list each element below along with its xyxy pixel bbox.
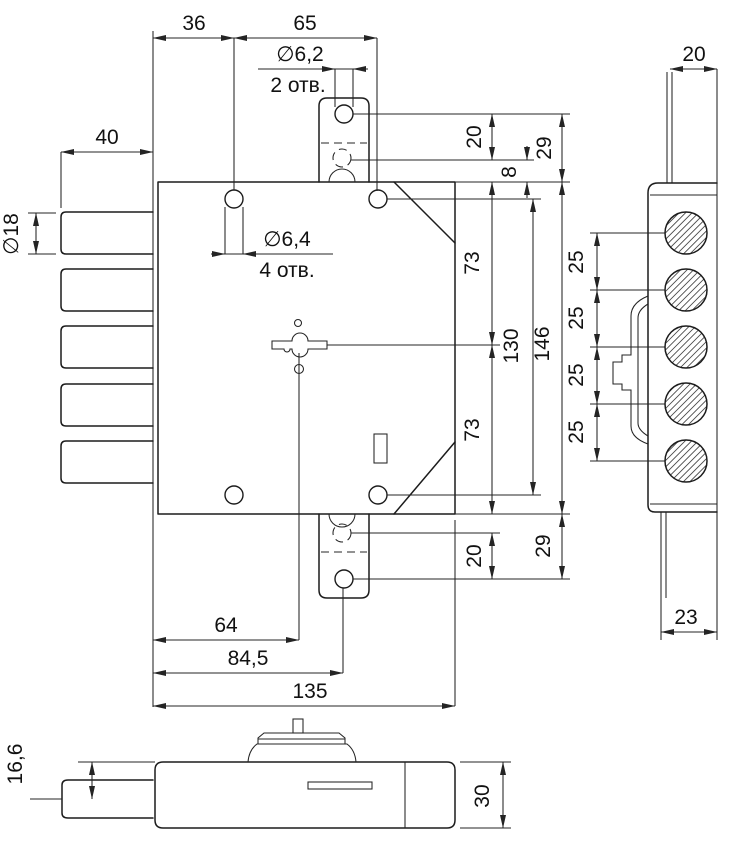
note-d64-diameter: ∅6,4 [263, 228, 311, 251]
dim-label-73-top: 73 [461, 251, 484, 274]
dim-label-29-bottom: 29 [532, 534, 555, 557]
dimensions-bottom: 16,6 30 [4, 744, 503, 828]
deadbolt-4 [61, 384, 153, 426]
tab-hole-bottom [335, 570, 353, 588]
bolt-section-3 [665, 326, 707, 368]
dim-label-73-bottom: 73 [461, 418, 484, 441]
tab-hidden-hole-top [333, 149, 351, 167]
fixing-hole-top-left [225, 190, 243, 208]
note-d62-count: 2 отв. [270, 74, 325, 97]
dim-label-20-bottom: 20 [463, 544, 486, 567]
fixing-hole-bottom-right [369, 486, 387, 504]
dim-label-30: 30 [471, 784, 494, 807]
deadbolt-5 [61, 441, 153, 483]
cylinder-dome-base [248, 744, 356, 762]
fixing-hole-top-right [369, 190, 387, 208]
bottom-case-outline [155, 762, 455, 828]
deadbolt-2 [61, 269, 153, 311]
bolt-section-2 [665, 269, 707, 311]
lock-technical-drawing: 36 65 ∅6,2 2 отв. ∅6,4 4 отв. 40 ∅18 20 … [0, 0, 739, 849]
dim-label-23: 23 [674, 606, 697, 629]
deadbolt-3 [61, 326, 153, 368]
dim-label-25-4: 25 [565, 420, 588, 443]
note-d64-count: 4 отв. [259, 259, 314, 282]
dim-label-130: 130 [500, 328, 523, 363]
dim-label-25-1: 25 [565, 250, 588, 273]
bolt-section-4 [665, 383, 707, 425]
dim-label-d18: ∅18 [0, 213, 23, 255]
dim-label-8: 8 [498, 166, 521, 178]
bottom-slot [308, 782, 372, 789]
deadbolt-1 [61, 212, 153, 254]
bottom-deadbolt [62, 780, 153, 818]
dim-label-65: 65 [293, 12, 316, 35]
escutcheon-profile-outer [613, 296, 648, 444]
dim-label-16-6: 16,6 [4, 744, 27, 785]
tab-arc-top [329, 169, 355, 182]
dim-label-40: 40 [95, 126, 118, 149]
dim-label-84-5: 84,5 [228, 647, 269, 670]
cylinder-knob [293, 719, 303, 733]
pin-above-keyhole [295, 320, 302, 327]
lever-slot [374, 434, 387, 463]
dimensions-front: 36 65 ∅6,2 2 отв. ∅6,4 4 отв. 40 ∅18 20 … [0, 12, 562, 706]
fixing-hole-bottom-left [225, 486, 243, 504]
tab-hole-top [335, 105, 353, 123]
escutcheon-profile-inner [638, 304, 648, 436]
dim-label-20-top: 20 [463, 125, 486, 148]
dim-label-25-3: 25 [565, 363, 588, 386]
drawing-canvas: 36 65 ∅6,2 2 отв. ∅6,4 4 отв. 40 ∅18 20 … [0, 0, 739, 849]
note-d62-diameter: ∅6,2 [276, 43, 324, 66]
dim-label-25-2: 25 [565, 306, 588, 329]
bolt-section-1 [665, 212, 707, 254]
tab-arc-bottom [329, 514, 355, 527]
dim-label-135: 135 [292, 680, 327, 703]
dim-label-29-top: 29 [533, 136, 556, 159]
dim-label-146: 146 [531, 326, 554, 361]
case-corner-chamfer-bottom [394, 442, 455, 514]
bottom-view: 16,6 30 [4, 719, 511, 828]
case-corner-chamfer-top [394, 182, 455, 243]
side-view: 20 25 25 25 25 23 [565, 43, 717, 640]
dim-label-64: 64 [214, 614, 238, 637]
front-view: 36 65 ∅6,2 2 отв. ∅6,4 4 отв. 40 ∅18 20 … [0, 12, 570, 707]
dim-label-20-side: 20 [682, 43, 705, 66]
dim-label-36: 36 [182, 12, 205, 35]
bolt-section-5 [665, 440, 707, 482]
